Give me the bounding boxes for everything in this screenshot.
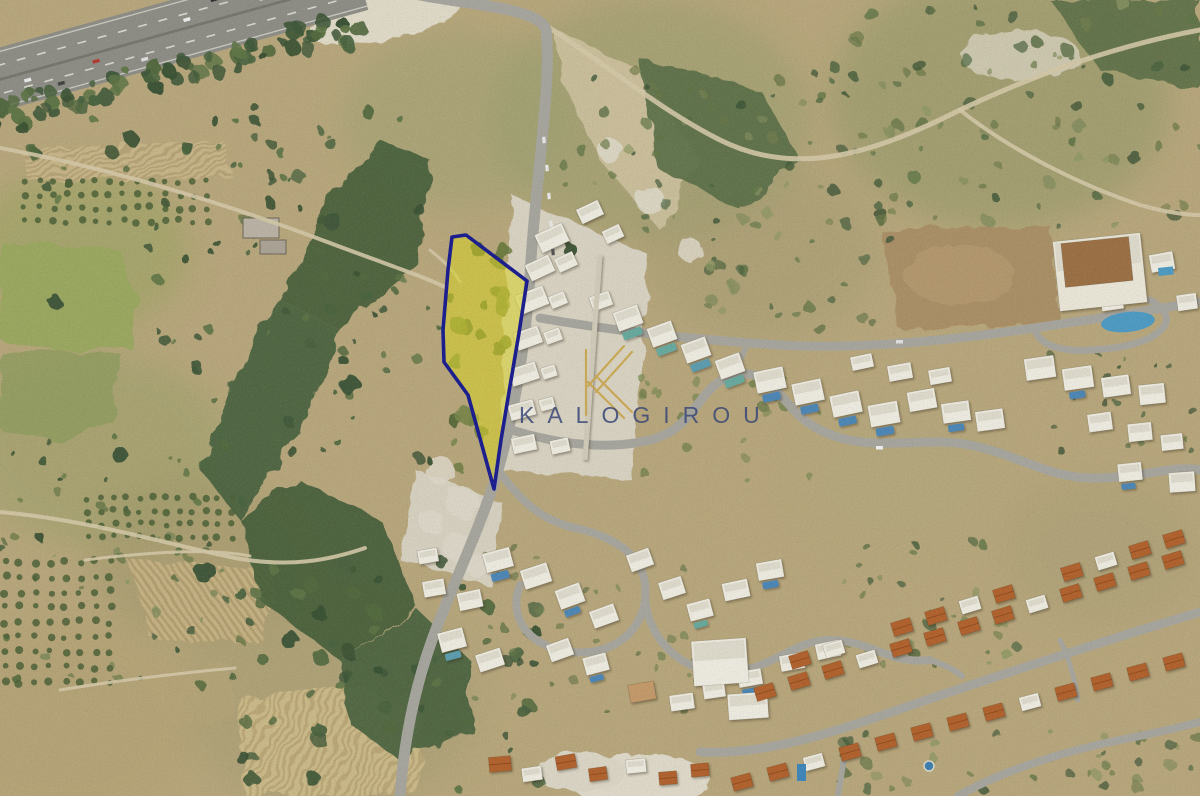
satellite-map: KALOGIROU (0, 0, 1200, 796)
photo-grain-light (0, 0, 1200, 796)
satellite-map-canvas: KALOGIROU (0, 0, 1200, 796)
